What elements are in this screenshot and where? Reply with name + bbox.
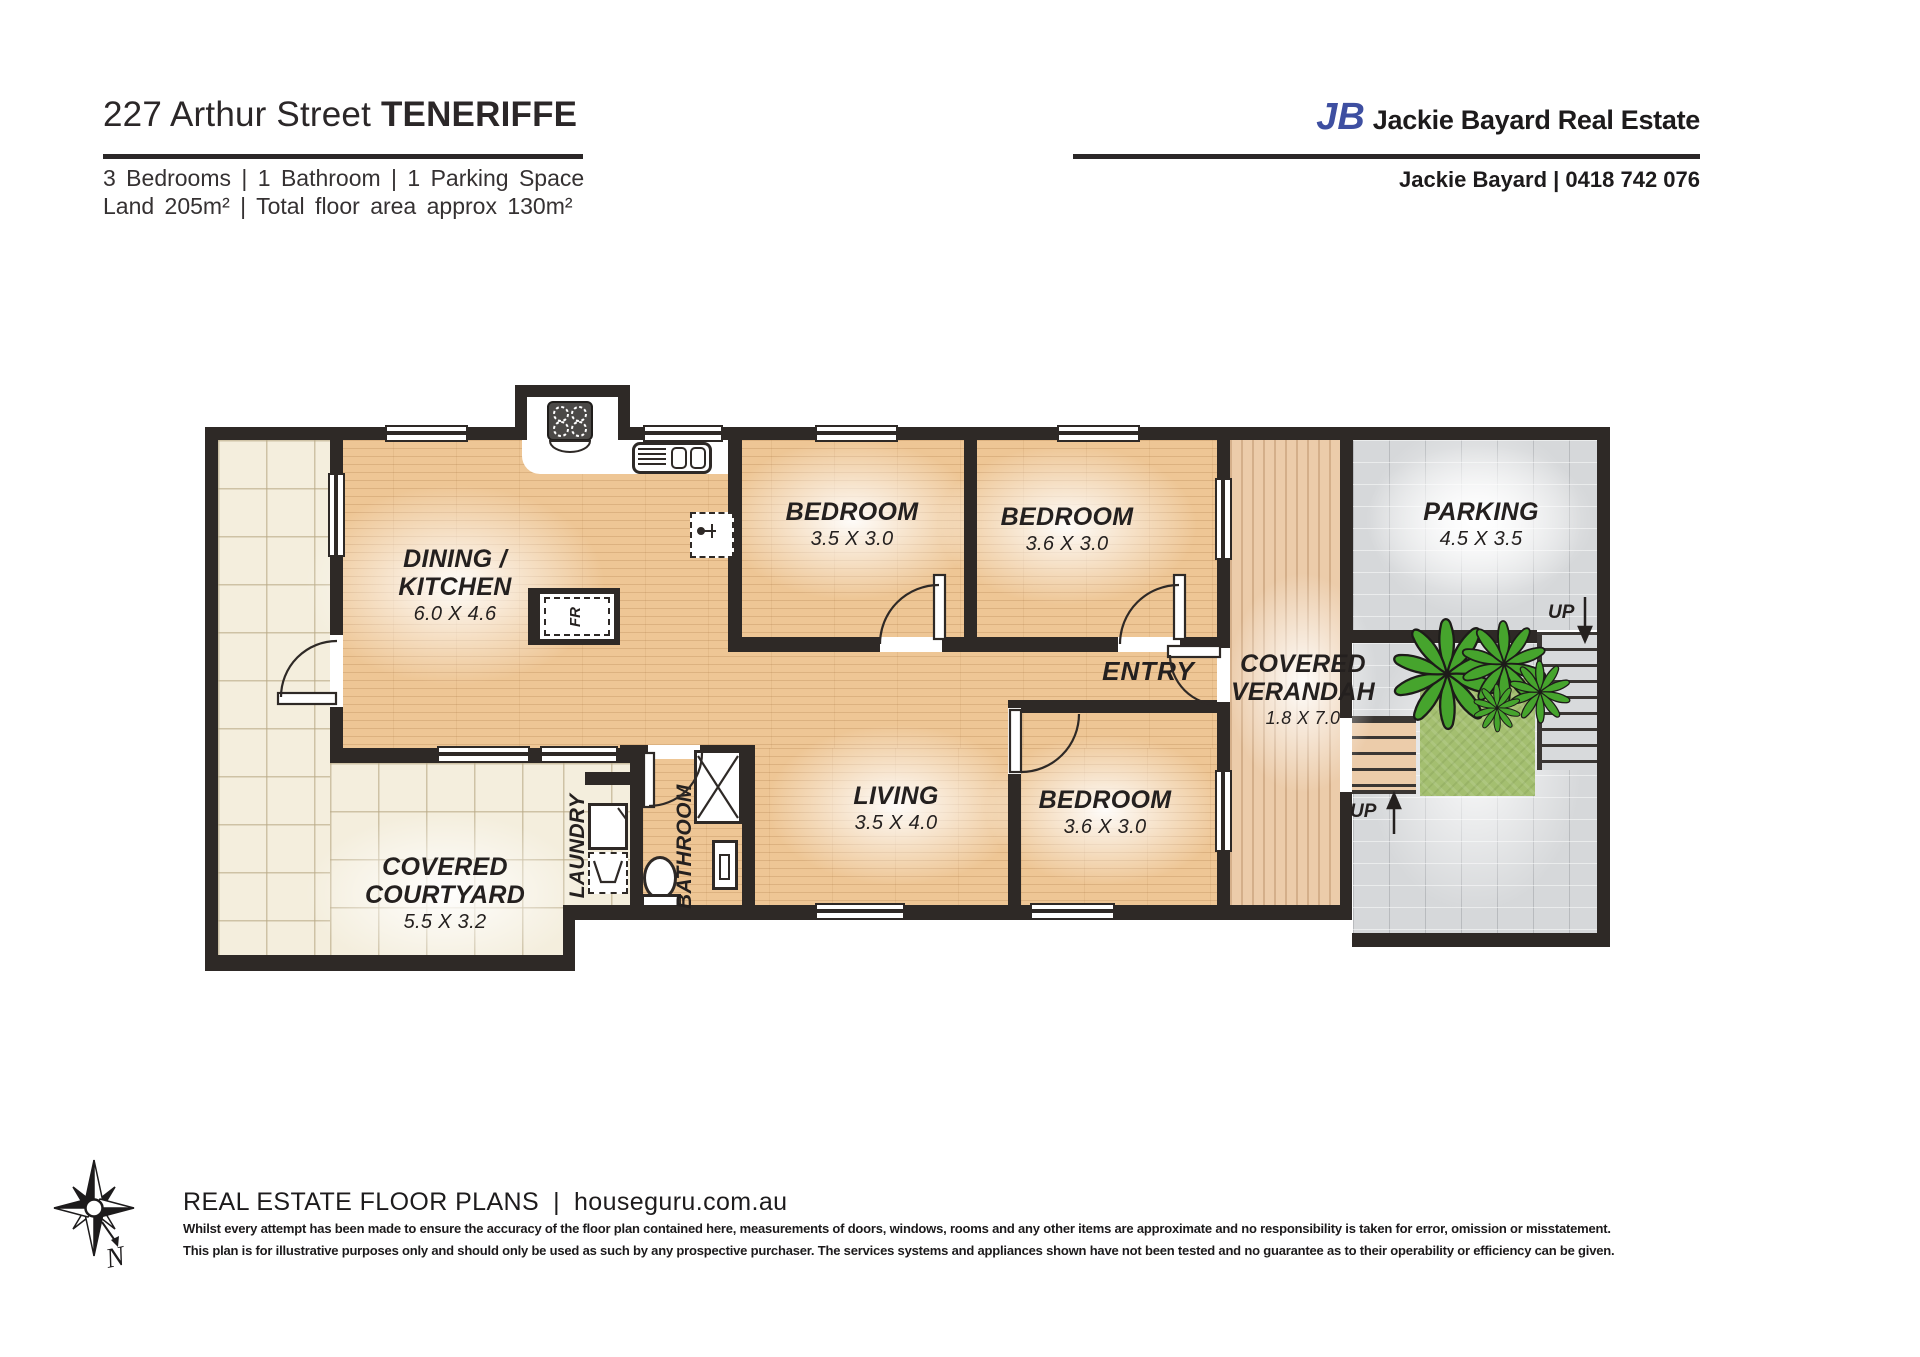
washing-machine xyxy=(588,803,628,850)
room-dimensions: 6.0 X 4.6 xyxy=(355,601,555,628)
room-name: BEDROOM xyxy=(752,498,952,526)
room-name: COURTYARD xyxy=(340,881,550,909)
kitchen-counter xyxy=(527,397,618,440)
wall xyxy=(1597,427,1610,947)
wall xyxy=(1340,427,1353,643)
room-label-bedroom2: BEDROOM 3.6 X 3.0 xyxy=(967,503,1167,558)
door-opening xyxy=(880,637,942,652)
room-name: DINING / xyxy=(355,545,555,573)
wall xyxy=(1010,700,1230,713)
property-area: Land 205m² | Total floor area approx 130… xyxy=(103,193,573,220)
up-label-parking: UP xyxy=(1548,602,1574,624)
wall xyxy=(742,745,755,920)
courtyard-floor xyxy=(218,440,330,955)
room-name: LIVING xyxy=(796,782,996,810)
property-specs: 3 Bedrooms | 1 Bathroom | 1 Parking Spac… xyxy=(103,165,584,192)
room-label-bedroom1: BEDROOM 3.5 X 3.0 xyxy=(752,498,952,553)
agency-divider xyxy=(1073,154,1700,159)
door-opening xyxy=(648,745,700,759)
room-label-parking: PARKING 4.5 X 3.5 xyxy=(1381,498,1581,553)
vanity xyxy=(712,840,738,890)
wall xyxy=(618,385,630,440)
window xyxy=(1030,903,1115,920)
agency-name: Jackie Bayard Real Estate xyxy=(1373,105,1700,135)
kitchen-sink xyxy=(632,442,712,474)
wall xyxy=(585,772,643,785)
title-divider xyxy=(103,154,583,159)
compass-icon: N xyxy=(52,1158,147,1278)
window xyxy=(1215,770,1232,852)
room-dimensions: 5.5 X 3.2 xyxy=(340,909,550,936)
sink-bowl xyxy=(671,447,687,469)
room-dimensions: 3.6 X 3.0 xyxy=(967,531,1167,558)
agency-logo: JB xyxy=(1316,96,1365,138)
room-label-courtyard: COVERED COURTYARD 5.5 X 3.2 xyxy=(340,853,550,936)
footer-brand: REAL ESTATE FLOOR PLANS xyxy=(183,1188,539,1216)
footer-separator: | xyxy=(553,1188,560,1216)
wall xyxy=(205,427,218,971)
room-label-bedroom3: BEDROOM 3.6 X 3.0 xyxy=(1005,786,1205,841)
room-label-verandah: COVERED VERANDAH 1.8 X 7.0 xyxy=(1223,650,1383,730)
room-name: KITCHEN xyxy=(355,573,555,601)
door-opening xyxy=(1008,708,1021,774)
window xyxy=(1057,425,1140,442)
window xyxy=(815,903,905,920)
wall xyxy=(1340,630,1537,643)
room-dimensions: 3.5 X 4.0 xyxy=(796,810,996,837)
window xyxy=(643,425,723,442)
window xyxy=(437,746,530,763)
room-label-laundry: LAUNDRY xyxy=(566,791,588,901)
garden-grass xyxy=(1420,678,1535,796)
room-name: ENTRY xyxy=(1086,657,1211,686)
room-dimensions: 4.5 X 3.5 xyxy=(1381,526,1581,553)
dishwasher xyxy=(690,512,734,558)
room-label-living: LIVING 3.5 X 4.0 xyxy=(796,782,996,837)
shower xyxy=(694,750,742,824)
room-dimensions: 3.5 X 3.0 xyxy=(752,526,952,553)
sink-drainer xyxy=(638,448,666,468)
up-label-verandah: UP xyxy=(1350,801,1376,823)
room-name: COVERED xyxy=(340,853,550,881)
room-label-dining-kitchen: DINING / KITCHEN 6.0 X 4.6 xyxy=(355,545,555,628)
footer-brand-line: REAL ESTATE FLOOR PLANS|houseguru.com.au xyxy=(183,1188,787,1217)
window xyxy=(328,473,345,557)
wall xyxy=(1352,933,1610,947)
window xyxy=(385,425,468,442)
footer-website: houseguru.com.au xyxy=(574,1188,787,1216)
wall xyxy=(205,955,575,971)
agent-contact: Jackie Bayard | 0418 742 076 xyxy=(1073,167,1700,193)
disclaimer-line1: Whilst every attempt has been made to en… xyxy=(183,1221,1611,1236)
disclaimer-line2: This plan is for illustrative purposes o… xyxy=(183,1243,1614,1258)
door-opening xyxy=(330,635,343,707)
suburb-text: TENERIFFE xyxy=(381,95,577,134)
window xyxy=(540,746,618,763)
address-text: 227 Arthur Street xyxy=(103,95,371,134)
room-dimensions: 1.8 X 7.0 xyxy=(1223,706,1383,730)
room-name: VERANDAH xyxy=(1223,678,1383,706)
room-dimensions: 3.6 X 3.0 xyxy=(1005,814,1205,841)
room-label-entry: ENTRY xyxy=(1086,657,1211,686)
wall xyxy=(515,385,527,440)
vanity-basin xyxy=(719,854,730,880)
door-opening xyxy=(1118,637,1180,652)
room-name: BEDROOM xyxy=(967,503,1167,531)
side-staircase xyxy=(1537,632,1597,770)
room-name: COVERED xyxy=(1223,650,1383,678)
room-name: PARKING xyxy=(1381,498,1581,526)
laundry-tub xyxy=(588,852,628,894)
room-name: BEDROOM xyxy=(1005,786,1205,814)
wall xyxy=(515,385,630,397)
sink-bowl xyxy=(690,447,706,469)
page-title: 227 Arthur Street TENERIFFE xyxy=(103,95,577,135)
room-label-bathroom: BATHROOM xyxy=(673,789,695,909)
floorplan-page: 227 Arthur Street TENERIFFE 3 Bedrooms |… xyxy=(0,0,1920,1357)
window xyxy=(1215,478,1232,560)
agency-brand: JBJackie Bayard Real Estate xyxy=(1073,96,1700,139)
window xyxy=(815,425,898,442)
wall xyxy=(205,427,527,440)
fridge-label: FR xyxy=(567,597,585,637)
compass-north-label: N xyxy=(102,1240,129,1275)
